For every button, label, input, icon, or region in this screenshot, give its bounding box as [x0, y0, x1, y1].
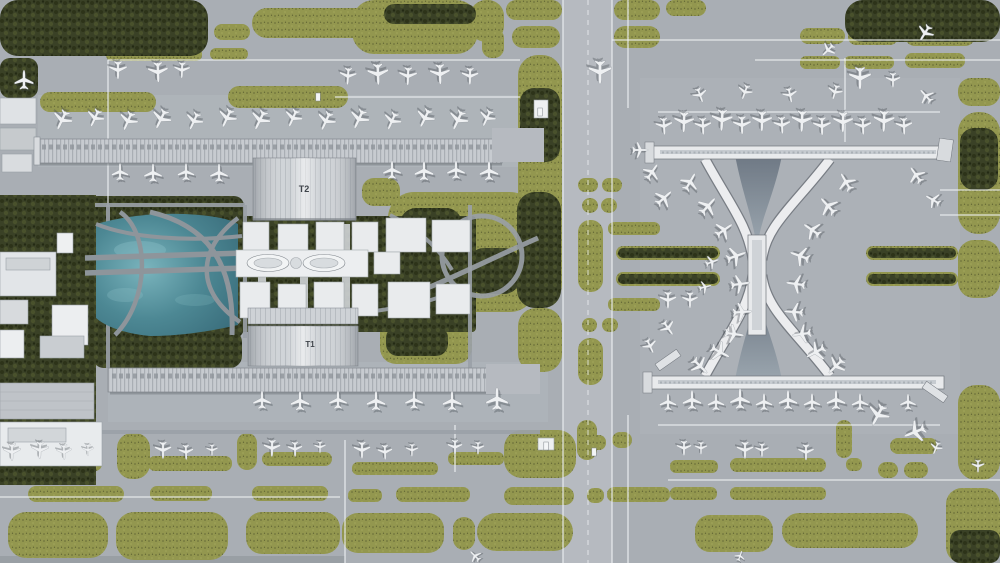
grass-patch: [588, 435, 606, 450]
grass-patch: [607, 487, 670, 502]
grass-patch: [608, 298, 660, 311]
grass-patch: [844, 56, 894, 69]
grass-patch: [150, 486, 212, 501]
tree-cluster: [868, 248, 956, 258]
grass-patch: [210, 48, 248, 60]
terminal-1-building: T1: [248, 308, 358, 366]
grass-patch: [670, 487, 717, 500]
tree-cluster: [868, 274, 956, 284]
grass-patch: [117, 433, 150, 479]
south-concourse-pier: [108, 368, 502, 392]
grass-patch: [237, 433, 257, 470]
tree-cluster: [950, 530, 1000, 563]
grass-patch: [666, 0, 706, 16]
grass-patch: [602, 318, 618, 332]
grass-patch: [878, 462, 898, 478]
grass-patch: [601, 198, 617, 213]
grass-patch: [958, 240, 1000, 298]
grass-patch: [582, 198, 598, 213]
grass-patch: [352, 462, 438, 475]
grass-patch: [890, 438, 938, 454]
grass-patch: [782, 513, 918, 548]
grass-patch: [578, 338, 603, 385]
grass-patch: [453, 517, 475, 550]
grass-patch: [904, 462, 928, 478]
grass-patch: [506, 0, 562, 20]
tree-cluster: [92, 330, 242, 368]
ground-vehicle: [316, 93, 321, 101]
ground-vehicle: [544, 442, 549, 450]
terminal-2-label: T2: [299, 184, 310, 194]
tree-cluster: [960, 128, 998, 190]
grass-patch: [612, 432, 632, 448]
grass-patch: [214, 24, 250, 40]
airport-scene: T2: [0, 0, 1000, 563]
grass-patch: [116, 512, 228, 560]
grass-patch: [614, 26, 660, 48]
grass-patch: [504, 430, 576, 478]
grass-patch: [730, 458, 826, 472]
grass-patch: [482, 28, 504, 58]
grass-patch: [512, 26, 560, 48]
grass-patch: [8, 512, 108, 558]
grass-patch: [730, 487, 826, 500]
grass-patch: [396, 487, 470, 502]
aerial-airport-photo: T2: [0, 0, 1000, 563]
terminal-2-building: T2: [253, 158, 356, 221]
grass-patch: [518, 308, 562, 372]
grass-patch: [582, 318, 597, 332]
grass-patch: [958, 78, 1000, 106]
grass-patch: [614, 0, 660, 20]
grass-patch: [587, 488, 604, 503]
tree-cluster: [384, 4, 476, 24]
grass-patch: [28, 486, 124, 502]
highway-interchange: [85, 212, 245, 336]
grass-patch: [228, 86, 348, 108]
tree-cluster: [618, 248, 718, 258]
grass-patch: [252, 486, 328, 501]
grass-patch: [608, 222, 660, 235]
grass-patch: [578, 220, 603, 292]
grass-patch: [348, 489, 382, 502]
grass-patch: [477, 513, 573, 551]
grass-patch: [148, 456, 232, 471]
grass-patch: [836, 420, 852, 458]
tree-cluster: [0, 58, 38, 98]
grass-patch: [800, 56, 840, 69]
grass-patch: [695, 515, 773, 552]
terminal-1-label: T1: [305, 340, 315, 349]
grass-patch: [846, 458, 862, 471]
grass-patch: [800, 28, 845, 44]
grass-patch: [670, 460, 718, 473]
grass-patch: [342, 513, 444, 553]
tree-cluster: [0, 0, 208, 56]
ground-vehicle: [592, 448, 597, 456]
ground-vehicle: [538, 108, 543, 116]
grass-patch: [448, 452, 504, 465]
grass-patch: [246, 512, 340, 554]
